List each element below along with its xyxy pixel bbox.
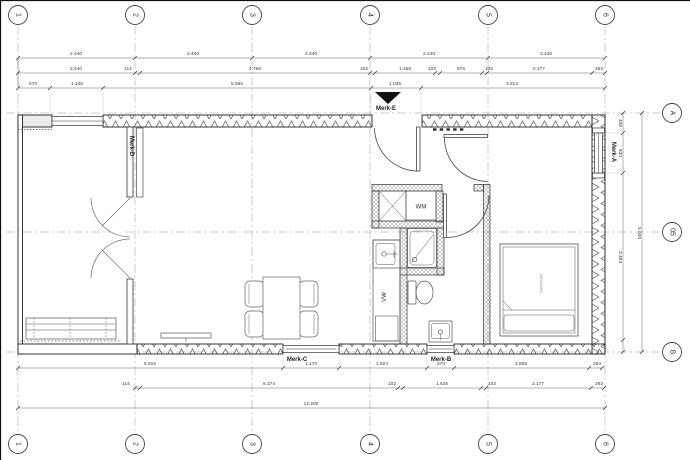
dim-label: 263 bbox=[593, 361, 601, 367]
grid-label-right-b: B bbox=[669, 350, 676, 355]
shower-diagonal bbox=[412, 235, 433, 262]
entrance-door bbox=[375, 127, 467, 171]
tech-closet: WM bbox=[379, 191, 436, 221]
chair bbox=[245, 311, 264, 337]
dim-rows-top: 2.440 2.440 2.440 2.440 2.440 2.440 114 … bbox=[16, 51, 607, 112]
dim-label: 114 bbox=[122, 381, 130, 387]
grid-label-top-6: 6 bbox=[602, 13, 609, 17]
mark-label-e: Merk-E bbox=[376, 106, 396, 112]
dim-label: 102 bbox=[360, 66, 368, 72]
entrance-door-swing-arc bbox=[375, 128, 418, 171]
dim-label: 2.177 bbox=[532, 381, 544, 387]
bedroom-door-leaf bbox=[444, 135, 488, 138]
dim-label: 406 bbox=[617, 119, 623, 127]
dim-label: 2.440 bbox=[305, 51, 317, 57]
grid-label-right-a: A bbox=[669, 111, 676, 116]
chair bbox=[299, 311, 318, 337]
shower-drain bbox=[412, 257, 417, 262]
bed-pillow-area bbox=[504, 315, 574, 331]
window-top-left bbox=[52, 117, 103, 126]
merk-e-triangle-icon bbox=[375, 92, 401, 104]
terrace-furniture bbox=[20, 318, 211, 342]
bathroom-door bbox=[444, 194, 490, 238]
wall-top-right bbox=[422, 115, 592, 127]
wm-label: WM bbox=[416, 205, 427, 211]
dim-label: 5.374 bbox=[263, 381, 275, 387]
bed-size-label: 1800x2000 bbox=[539, 273, 544, 294]
blanket-fold bbox=[503, 301, 575, 310]
grid-label-bottom-5: 5 bbox=[485, 442, 492, 446]
dim-label: 1.036 bbox=[389, 81, 401, 87]
dim-label: 1.626 bbox=[436, 381, 448, 387]
wall-bottom-3 bbox=[454, 344, 605, 354]
grid-label-right-05: 05 bbox=[669, 228, 676, 236]
window-merk-a bbox=[593, 128, 605, 178]
dim-label: 670 bbox=[29, 81, 37, 87]
dim-label: 102 bbox=[485, 66, 493, 72]
grid-label-bottom-6: 6 bbox=[602, 442, 609, 446]
wall-bottom-terrace bbox=[18, 344, 137, 354]
dim-label: 2.440 bbox=[70, 66, 82, 72]
dim-label: 2.177 bbox=[533, 66, 545, 72]
chair bbox=[245, 281, 264, 307]
vw-label: VW bbox=[382, 292, 388, 302]
sideboard bbox=[161, 333, 211, 342]
dim-label: 876 bbox=[457, 66, 465, 72]
grid-circles-top: 1 2 3 4 5 6 bbox=[9, 6, 615, 25]
dim-label: 2.440 bbox=[540, 51, 552, 57]
entrance-door-leaf bbox=[417, 127, 421, 171]
double-doors bbox=[91, 198, 130, 278]
grid-label-bottom-4: 4 bbox=[367, 442, 374, 446]
dim-label: 830 bbox=[617, 149, 623, 157]
bench bbox=[26, 318, 116, 339]
bedroom-door bbox=[444, 135, 488, 182]
door-leaf bbox=[102, 250, 130, 278]
door-leaf bbox=[102, 198, 130, 226]
bathroom-door-leaf bbox=[444, 194, 447, 238]
dim-label: 2.440 bbox=[70, 51, 82, 57]
wall-bottom-1 bbox=[137, 344, 283, 354]
toilet bbox=[408, 281, 433, 304]
floor-plan: 1 2 3 4 5 6 1 2 3 4 5 6 A 05 B bbox=[0, 0, 690, 460]
dim-label: 5.580 bbox=[231, 81, 243, 87]
kitchen-cabinet bbox=[376, 316, 399, 341]
dim-label: 5.515 bbox=[144, 361, 156, 367]
dim-label: 1.824 bbox=[376, 361, 388, 367]
grid-label-bottom-2: 2 bbox=[132, 442, 139, 446]
dim-label: 1.258 bbox=[399, 66, 411, 72]
bedroom-door-swing-arc bbox=[445, 138, 488, 182]
dim-label: 1.100 bbox=[71, 81, 83, 87]
dim-label: 3.484 bbox=[617, 251, 623, 263]
partition-panel bbox=[137, 128, 144, 197]
dim-label: 102 bbox=[388, 381, 396, 387]
bathroom-door-swing-arc bbox=[447, 196, 489, 238]
dim-label: 2.808 bbox=[515, 361, 527, 367]
chair bbox=[299, 281, 318, 307]
dim-label: 12.200 bbox=[304, 401, 319, 407]
hand-basin bbox=[429, 321, 452, 342]
dim-label: 102 bbox=[488, 381, 496, 387]
wall-bottom-2 bbox=[339, 344, 427, 354]
bed: 1800x2000 bbox=[500, 244, 578, 336]
wall-left-glazing bbox=[18, 115, 23, 354]
tech-unit-x bbox=[379, 191, 406, 221]
floor-plan-canvas: 1 2 3 4 5 6 1 2 3 4 5 6 A 05 B bbox=[0, 0, 690, 460]
extension-lines-top bbox=[50, 92, 421, 112]
dim-label: 3.814 bbox=[506, 81, 518, 87]
dim-label: 2.440 bbox=[187, 51, 199, 57]
kitchen-counter: VW bbox=[373, 240, 400, 341]
dim-label: 570 bbox=[437, 361, 445, 367]
dining-set bbox=[245, 277, 318, 339]
mark-label-d: Merk-D bbox=[128, 136, 134, 157]
grid-label-bottom-1: 1 bbox=[15, 442, 22, 446]
dim-label: 2.440 bbox=[423, 51, 435, 57]
dim-label: 263 bbox=[595, 66, 603, 72]
dim-label: 4.766 bbox=[249, 66, 261, 72]
wc-room bbox=[408, 281, 452, 342]
faucet-icon bbox=[382, 252, 386, 256]
dim-label: 102 bbox=[428, 66, 436, 72]
mark-merk-e: Merk-E bbox=[375, 92, 401, 112]
grid-label-top-3: 3 bbox=[249, 13, 256, 17]
mark-label-a: Merk-A bbox=[610, 142, 616, 163]
dim-label: 114 bbox=[124, 66, 132, 72]
page-border bbox=[0, 0, 690, 460]
grid-label-top-2: 2 bbox=[132, 13, 139, 17]
wall-top-left bbox=[103, 115, 372, 127]
grid-circles-bottom: 1 2 3 4 5 6 bbox=[9, 435, 615, 454]
grid-label-top-4: 4 bbox=[367, 13, 374, 17]
grid-label-top-5: 5 bbox=[485, 13, 492, 17]
grid-label-top-1: 1 bbox=[15, 13, 22, 17]
partition-lower bbox=[127, 279, 133, 344]
dining-table bbox=[263, 277, 300, 339]
window-merk-b bbox=[427, 346, 454, 353]
dim-rows-bottom: Merk-C Merk-B 5.515 1.170 1.824 570 2.80… bbox=[16, 356, 607, 410]
dim-label: 5.000 bbox=[636, 227, 642, 239]
wall-top-stub bbox=[18, 115, 52, 127]
grid-label-bottom-3: 3 bbox=[249, 442, 256, 446]
grid-circles-right: A 05 B bbox=[663, 104, 682, 362]
dim-label: 1.170 bbox=[305, 361, 317, 367]
kitchen-sink bbox=[373, 240, 400, 268]
shower-tray bbox=[408, 229, 437, 268]
basin-tap-icon bbox=[439, 330, 443, 334]
dim-label: 263 bbox=[595, 381, 603, 387]
window-merk-c bbox=[283, 346, 339, 353]
